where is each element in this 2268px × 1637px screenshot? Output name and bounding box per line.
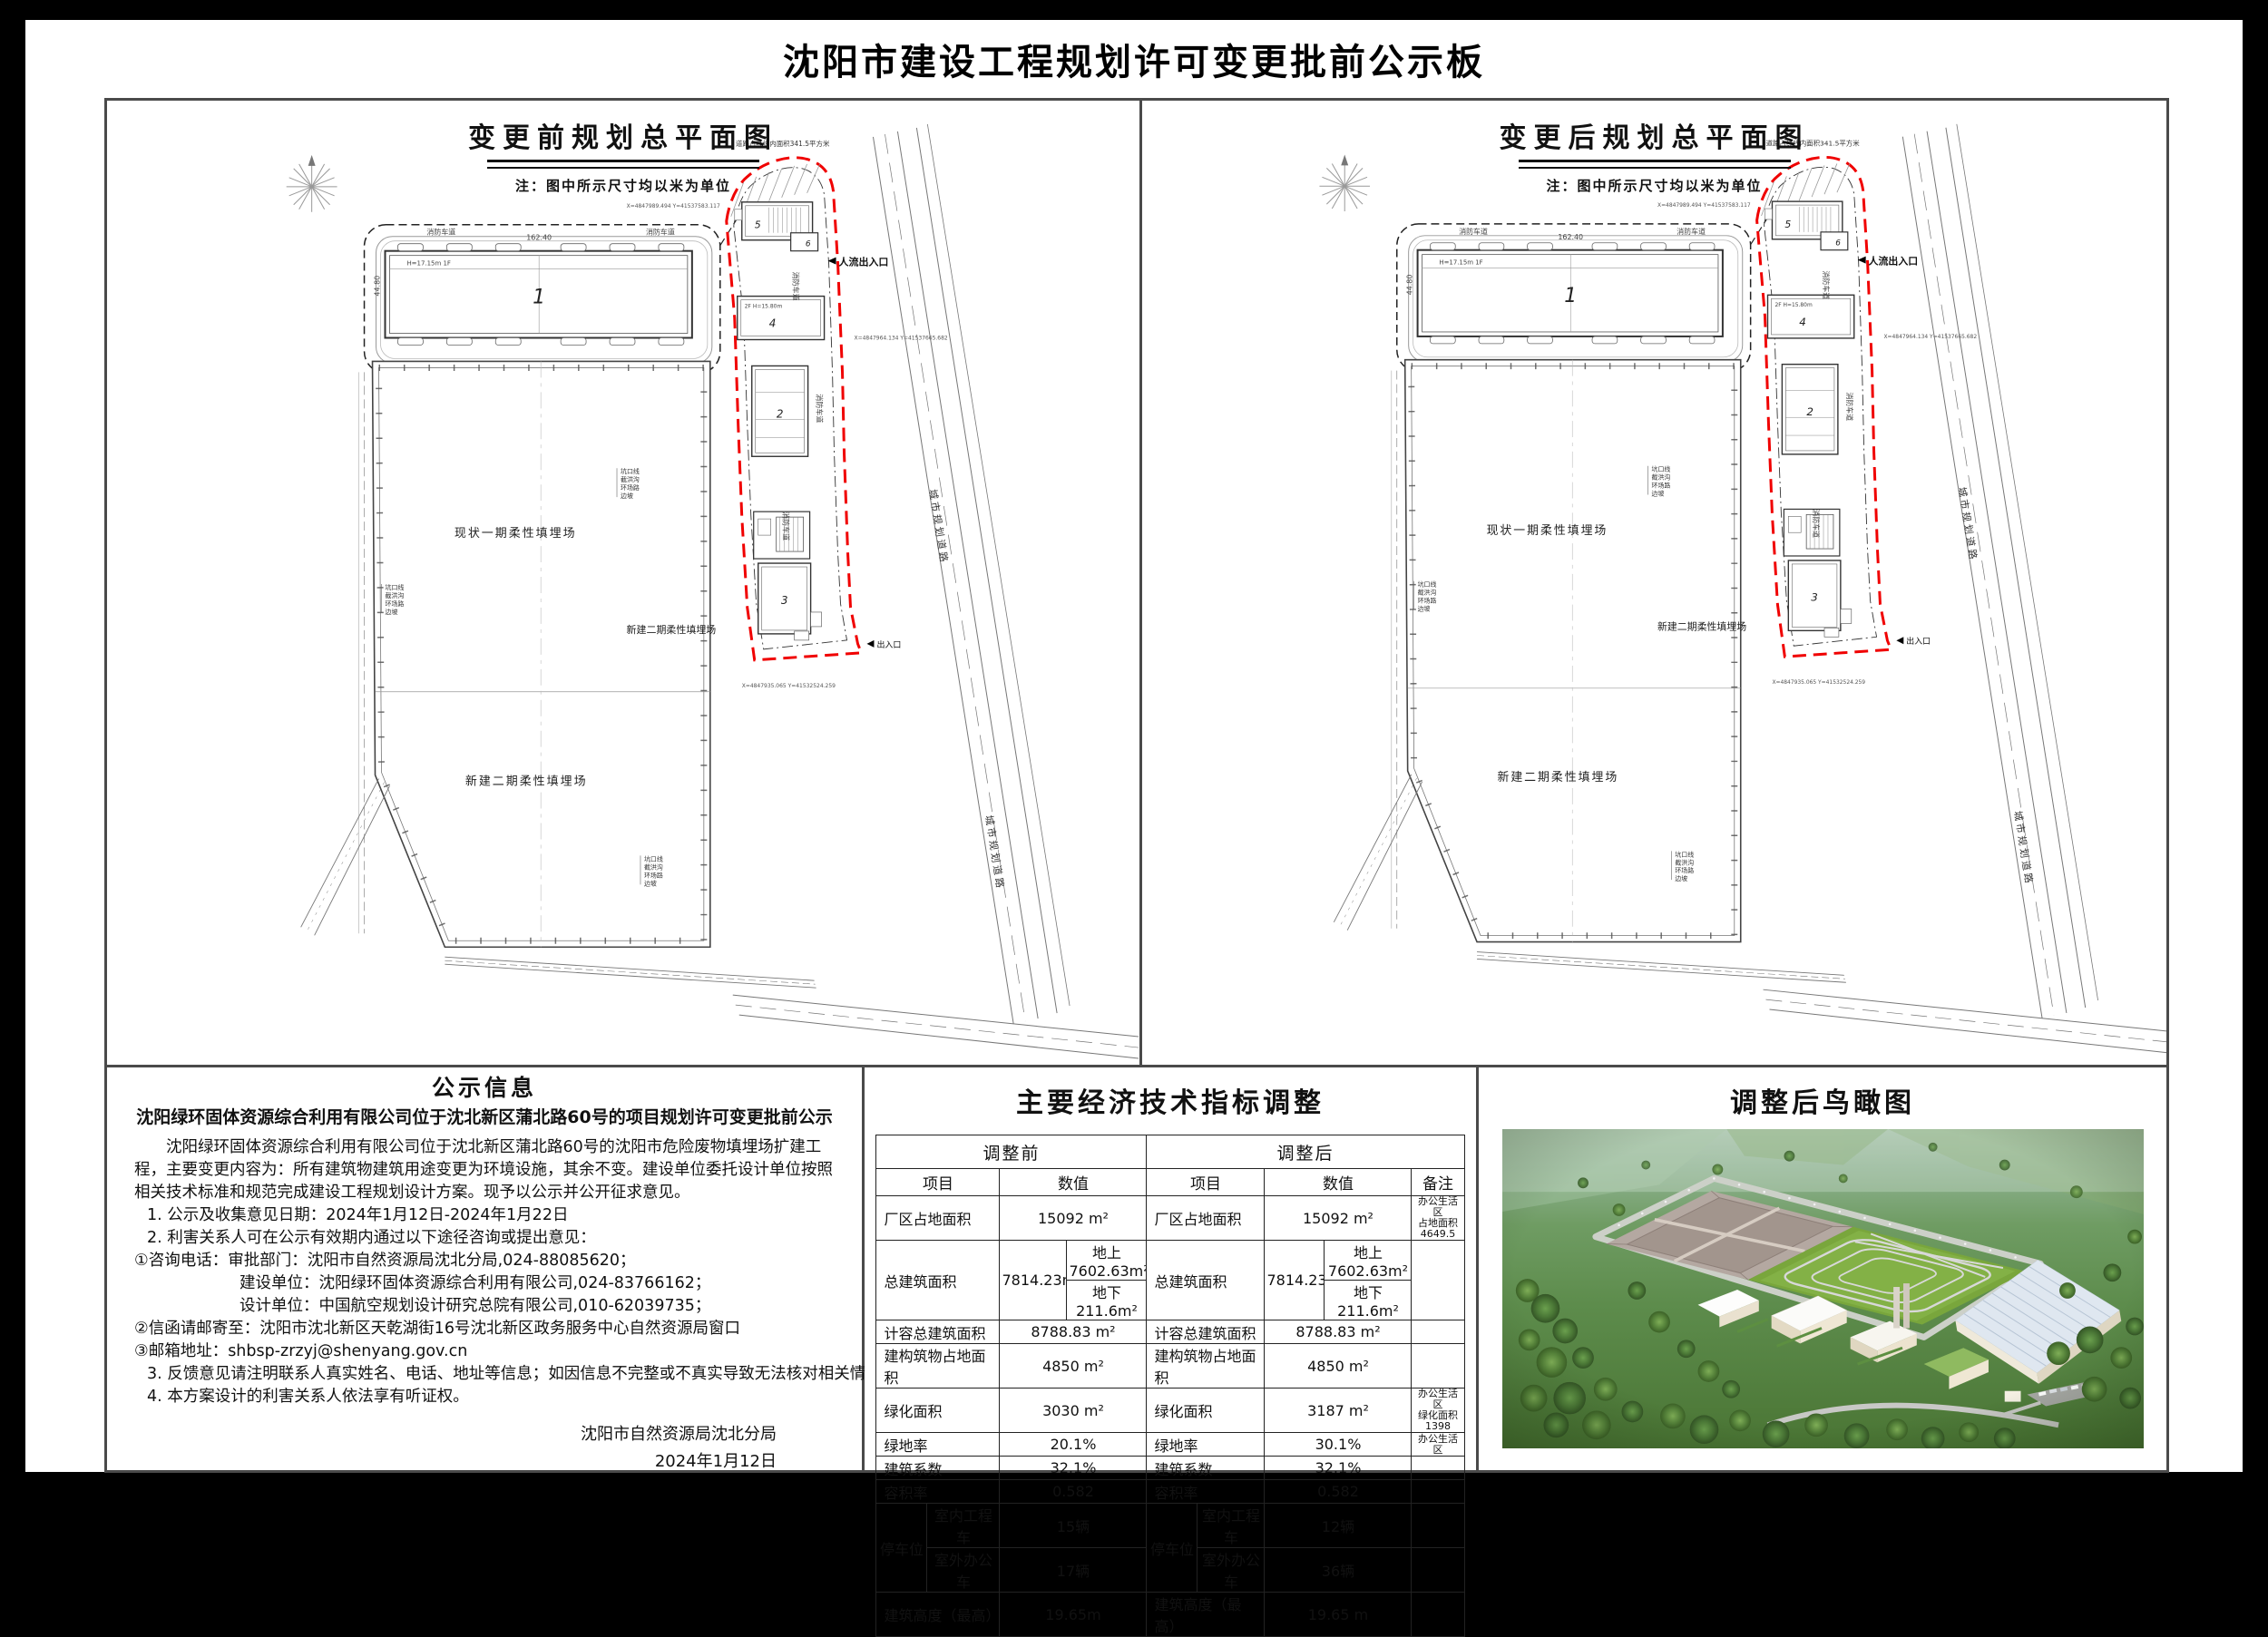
cell-note: 办公生活区 绿化面积1398 bbox=[1412, 1389, 1464, 1433]
cell-after: 12辆 bbox=[1265, 1504, 1412, 1548]
notice-line: 1. 公示及收集意见日期：2024年1月12日-2024年1月22日 bbox=[134, 1204, 835, 1227]
cell-parking-label: 室内工程车 bbox=[1198, 1504, 1265, 1548]
notice-line: 3. 反馈意见请注明联系人真实姓名、电话、地址等信息；如因信息不完整或不真实导致… bbox=[134, 1363, 835, 1386]
cell-parking-label: 室外办公车 bbox=[1198, 1548, 1265, 1593]
cell-note bbox=[1412, 1241, 1464, 1320]
notice-line: 建设单位：沈阳绿环固体资源综合利用有限公司,024-83766162； bbox=[134, 1272, 835, 1295]
cell-before-above: 地上7602.63m² bbox=[1067, 1241, 1147, 1281]
indicators-table: 调整前 调整后 项目 数值 项目 数值 备注 厂区占地面积 15092 m² 厂… bbox=[875, 1135, 1464, 1637]
header-item: 项目 bbox=[1147, 1169, 1265, 1196]
cell-item: 建构筑物占地面积 bbox=[1147, 1344, 1265, 1389]
signature-agency: 沈阳市自然资源局沈北分局 bbox=[134, 1421, 777, 1448]
bottom-row: 公示信息 沈阳绿环固体资源综合利用有限公司位于沈北新区蒲北路60号的项目规划许可… bbox=[107, 1065, 2166, 1470]
board-frame: 变更前规划总平面图 注：图中所示尺寸均以米为单位 变更后规划总平面图 注：图中所… bbox=[104, 98, 2169, 1473]
cell-after-above: 地上7602.63m² bbox=[1325, 1241, 1412, 1281]
cell-after-below: 地下211.6m² bbox=[1325, 1281, 1412, 1320]
cell-after-main: 7814.23m² bbox=[1265, 1241, 1325, 1320]
cell-parking-group: 停车位 bbox=[876, 1504, 927, 1593]
cell-note bbox=[1412, 1344, 1464, 1389]
cell-before: 0.582 bbox=[1000, 1480, 1147, 1504]
cell-before: 8788.83 m² bbox=[1000, 1320, 1147, 1344]
notice-paragraph: 沈阳绿环固体资源综合利用有限公司位于沈北新区蒲北路60号的沈阳市危险废物填埋场扩… bbox=[134, 1136, 835, 1204]
cell-note bbox=[1412, 1480, 1464, 1504]
cell-item: 绿化面积 bbox=[876, 1389, 1000, 1433]
cell-item: 计容总建筑面积 bbox=[1147, 1320, 1265, 1344]
header-before: 调整前 bbox=[876, 1135, 1147, 1169]
cell-item: 计容总建筑面积 bbox=[876, 1320, 1000, 1344]
cell-note bbox=[1412, 1593, 1464, 1637]
cell-item: 绿地率 bbox=[876, 1433, 1000, 1457]
cell-before: 32.1% bbox=[1000, 1457, 1147, 1480]
header-after: 调整后 bbox=[1147, 1135, 1464, 1169]
cell-note bbox=[1412, 1548, 1464, 1593]
table-row: 厂区占地面积 15092 m² 厂区占地面积 15092 m² 办公生活区 占地… bbox=[876, 1196, 1464, 1241]
site-plan-before bbox=[107, 101, 1139, 1065]
cell-after: 4850 m² bbox=[1265, 1344, 1412, 1389]
cell-item: 总建筑面积 bbox=[876, 1241, 1000, 1320]
page-title: 沈阳市建设工程规划许可变更批前公示板 bbox=[25, 33, 2243, 85]
table-row: 建构筑物占地面积 4850 m² 建构筑物占地面积 4850 m² bbox=[876, 1344, 1464, 1389]
notice-subtitle: 沈阳绿环固体资源综合利用有限公司位于沈北新区蒲北路60号的项目规划许可变更批前公… bbox=[134, 1106, 835, 1129]
panel-plan-before: 变更前规划总平面图 注：图中所示尺寸均以米为单位 bbox=[107, 101, 1142, 1065]
notice-line: 设计单位：中国航空规划设计研究总院有限公司,010-62039735； bbox=[134, 1295, 835, 1318]
cell-parking-label: 室内工程车 bbox=[927, 1504, 1000, 1548]
cell-item: 建筑高度（最高） bbox=[1147, 1593, 1265, 1637]
cell-parking-label: 室外办公车 bbox=[927, 1548, 1000, 1593]
cell-note bbox=[1412, 1504, 1464, 1548]
cell-after: 30.1% bbox=[1265, 1433, 1412, 1457]
cell-item: 建筑系数 bbox=[1147, 1457, 1265, 1480]
cell-note bbox=[1412, 1320, 1464, 1344]
cell-before-main: 7814.23m² bbox=[1000, 1241, 1067, 1320]
cell-before: 15092 m² bbox=[1000, 1196, 1147, 1241]
cell-item: 容积率 bbox=[1147, 1480, 1265, 1504]
notice-line: ③邮箱地址：shbsp-zrzyj@shenyang.gov.cn bbox=[134, 1340, 835, 1363]
cell-after: 3187 m² bbox=[1265, 1389, 1412, 1433]
header-item: 项目 bbox=[876, 1169, 1000, 1196]
notice-line: 2. 利害关系人可在公示有效期内通过以下途径咨询或提出意见： bbox=[134, 1227, 835, 1250]
notice-title: 公示信息 bbox=[134, 1077, 835, 1099]
table-row: 建筑高度（最高） 19.65m 建筑高度（最高） 19.65 m bbox=[876, 1593, 1464, 1637]
cell-before-below: 地下211.6m² bbox=[1067, 1281, 1147, 1320]
cell-item: 厂区占地面积 bbox=[1147, 1196, 1265, 1241]
cell-before: 20.1% bbox=[1000, 1433, 1147, 1457]
cell-parking-group: 停车位 bbox=[1147, 1504, 1198, 1593]
notice-line: ①咨询电话：审批部门：沈阳市自然资源局沈北分局,024-88085620； bbox=[134, 1250, 835, 1272]
indicators-title: 主要经济技术指标调整 bbox=[865, 1080, 1476, 1120]
cell-note bbox=[1412, 1457, 1464, 1480]
cell-item: 建构筑物占地面积 bbox=[876, 1344, 1000, 1389]
cell-after: 15092 m² bbox=[1265, 1196, 1412, 1241]
cell-item: 建筑系数 bbox=[876, 1457, 1000, 1480]
table-row: 绿化面积 3030 m² 绿化面积 3187 m² 办公生活区 绿化面积1398 bbox=[876, 1389, 1464, 1433]
cell-before: 15辆 bbox=[1000, 1504, 1147, 1548]
cell-note: 办公生活区 占地面积4649.5 bbox=[1412, 1196, 1464, 1241]
panel-indicators: 主要经济技术指标调整 调整前 调整后 项目 数值 项目 bbox=[865, 1067, 1479, 1470]
cell-item: 总建筑面积 bbox=[1147, 1241, 1265, 1320]
notice-line: 4. 本方案设计的利害关系人依法享有听证权。 bbox=[134, 1386, 835, 1408]
cell-item: 绿化面积 bbox=[1147, 1389, 1265, 1433]
cell-item: 建筑高度（最高） bbox=[876, 1593, 1000, 1637]
table-row: 停车位 室内工程车 15辆 停车位 室内工程车 12辆 bbox=[876, 1504, 1464, 1548]
notice-body: 公示信息 沈阳绿环固体资源综合利用有限公司位于沈北新区蒲北路60号的项目规划许可… bbox=[107, 1067, 862, 1476]
cell-after: 0.582 bbox=[1265, 1480, 1412, 1504]
table-row: 计容总建筑面积 8788.83 m² 计容总建筑面积 8788.83 m² bbox=[876, 1320, 1464, 1344]
panel-plan-after: 变更后规划总平面图 注：图中所示尺寸均以米为单位 bbox=[1142, 101, 2166, 1065]
cell-after: 19.65 m bbox=[1265, 1593, 1412, 1637]
table-row: 绿地率 20.1% 绿地率 30.1% 办公生活区 bbox=[876, 1433, 1464, 1457]
cell-note: 办公生活区 bbox=[1412, 1433, 1464, 1457]
cell-before: 17辆 bbox=[1000, 1548, 1147, 1593]
notice-line: ②信函请邮寄至：沈阳市沈北新区天乾湖街16号沈北新区政务服务中心自然资源局窗口 bbox=[134, 1318, 835, 1340]
cell-before: 19.65m bbox=[1000, 1593, 1147, 1637]
cell-before: 3030 m² bbox=[1000, 1389, 1147, 1433]
cell-item: 容积率 bbox=[876, 1480, 1000, 1504]
panel-notice-info: 公示信息 沈阳绿环固体资源综合利用有限公司位于沈北新区蒲北路60号的项目规划许可… bbox=[107, 1067, 865, 1470]
header-value: 数值 bbox=[1000, 1169, 1147, 1196]
site-plan-after bbox=[1142, 101, 2166, 1065]
signature-date: 2024年1月12日 bbox=[134, 1448, 777, 1476]
table-row: 总建筑面积 7814.23m² 地上7602.63m² 总建筑面积 7814.2… bbox=[876, 1241, 1464, 1281]
table-row: 容积率 0.582 容积率 0.582 bbox=[876, 1480, 1464, 1504]
header-note: 备注 bbox=[1412, 1169, 1464, 1196]
header-value: 数值 bbox=[1265, 1169, 1412, 1196]
cell-after: 36辆 bbox=[1265, 1548, 1412, 1593]
notice-board-sheet: 沈阳市建设工程规划许可变更批前公示板 变更前规划总平面图 注：图中所示尺寸均以米… bbox=[25, 20, 2243, 1472]
notice-signature: 沈阳市自然资源局沈北分局 2024年1月12日 bbox=[134, 1421, 835, 1476]
panel-aerial-view: 调整后鸟瞰图 bbox=[1479, 1067, 2166, 1470]
aerial-title: 调整后鸟瞰图 bbox=[1479, 1080, 2166, 1120]
cell-item: 厂区占地面积 bbox=[876, 1196, 1000, 1241]
cell-after: 32.1% bbox=[1265, 1457, 1412, 1480]
cell-after: 8788.83 m² bbox=[1265, 1320, 1412, 1344]
cell-before: 4850 m² bbox=[1000, 1344, 1147, 1389]
table-row: 建筑系数 32.1% 建筑系数 32.1% bbox=[876, 1457, 1464, 1480]
aerial-render bbox=[1500, 1129, 2146, 1448]
vignette bbox=[1502, 1129, 2144, 1448]
cell-item: 绿地率 bbox=[1147, 1433, 1265, 1457]
